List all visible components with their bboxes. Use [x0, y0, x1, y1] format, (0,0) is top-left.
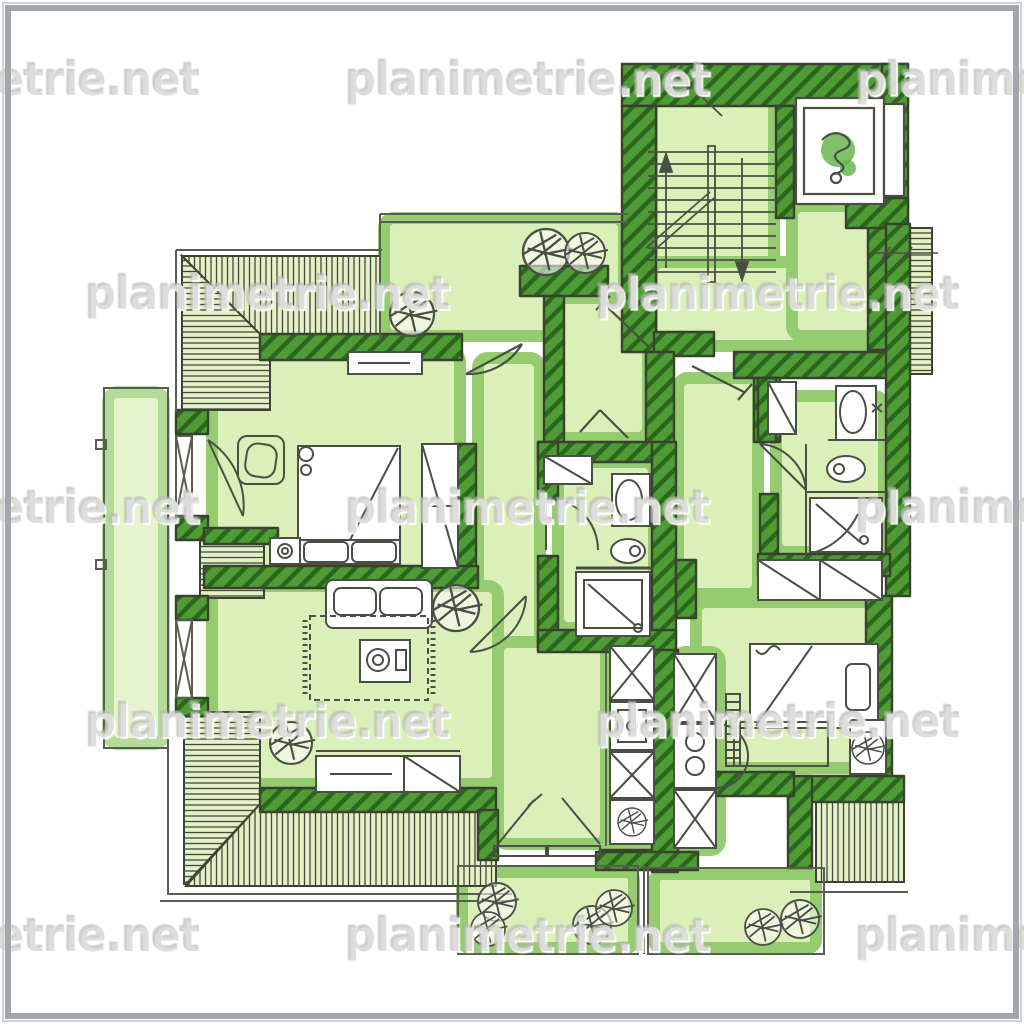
scanned-floorplan-page: planimetrie.net planimetrie.net planimet… [0, 0, 1024, 1024]
double-bed[interactable] [750, 644, 878, 728]
window-x-brace [176, 436, 192, 516]
shower-icon[interactable] [810, 498, 882, 552]
wall-segment [776, 106, 794, 218]
elevator[interactable] [796, 98, 904, 204]
wall-segment [176, 698, 208, 716]
elevator-side-slot [884, 104, 904, 196]
wall-segment [652, 442, 676, 652]
wall-segment [544, 296, 564, 444]
wall-segment [622, 106, 656, 352]
stair-room-wash [652, 96, 774, 276]
pillow [304, 542, 348, 562]
side-balcony-wash [108, 392, 164, 744]
wall-segment [176, 410, 208, 434]
shower-icon[interactable] [576, 572, 650, 636]
washbasin-counter [612, 474, 650, 526]
pillow [352, 542, 396, 562]
wall-segment [176, 596, 208, 620]
wall-segment [734, 352, 888, 378]
window-x-brace [176, 620, 192, 698]
floorplan-drawing [0, 0, 1024, 1024]
wall-segment [204, 528, 278, 544]
wall-segment [760, 494, 778, 554]
nightstand[interactable] [270, 538, 300, 564]
dining-wash [498, 642, 606, 844]
toilet-icon[interactable] [827, 456, 865, 482]
wall-segment [676, 560, 696, 618]
roof-bottomright [816, 800, 904, 882]
roof-right-overhang [910, 228, 932, 374]
wall-segment [646, 352, 674, 444]
wall-segment [886, 224, 910, 596]
